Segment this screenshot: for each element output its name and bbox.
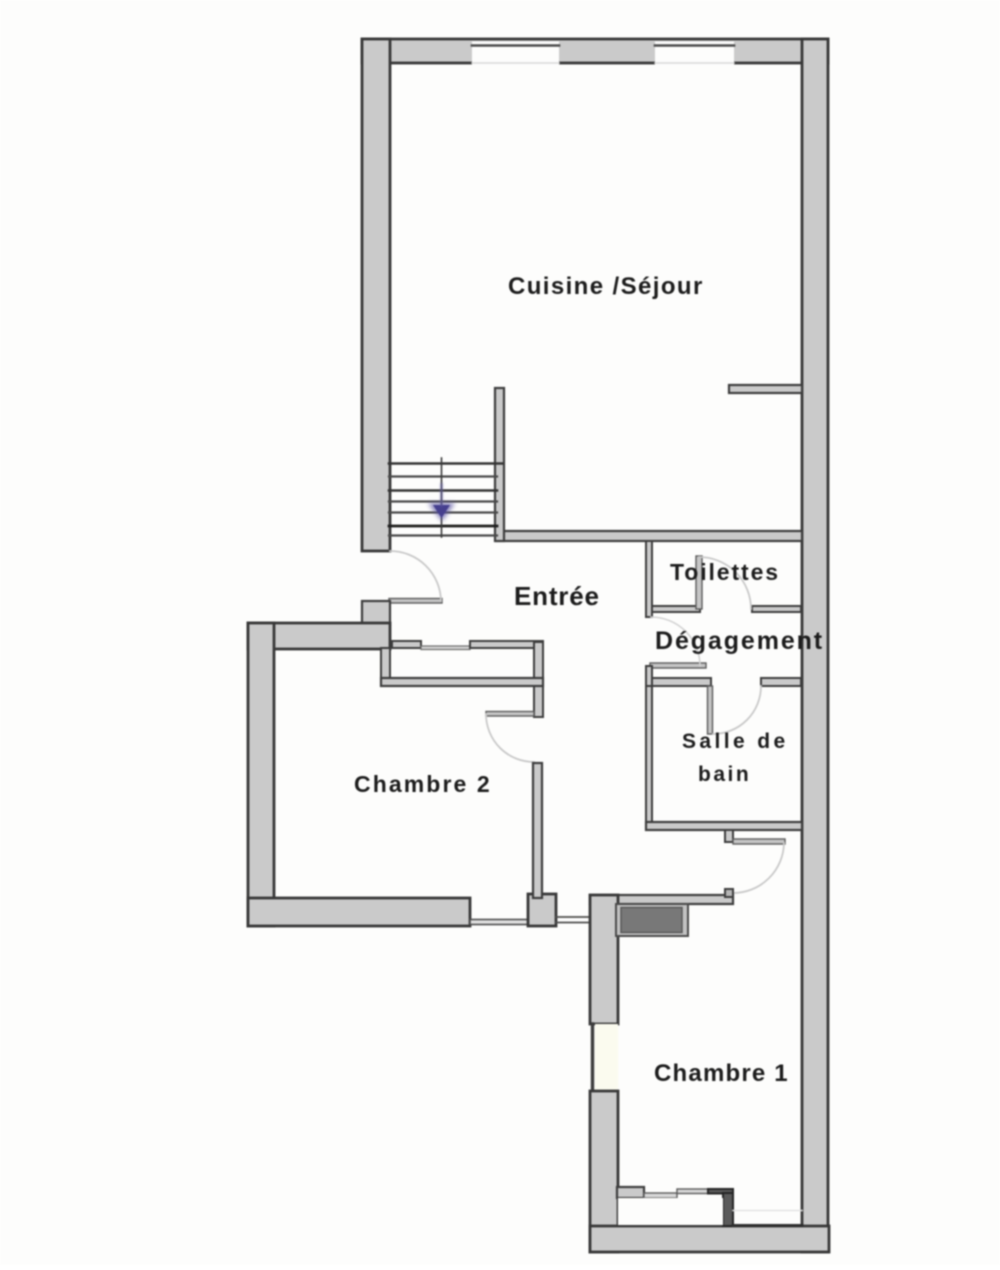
svg-text:Entrée: Entrée — [514, 581, 600, 611]
svg-text:Chambre 1: Chambre 1 — [654, 1060, 789, 1087]
svg-text:Cuisine /Séjour: Cuisine /Séjour — [508, 273, 704, 300]
svg-text:Toilettes: Toilettes — [670, 559, 780, 585]
svg-text:Dégagement: Dégagement — [655, 627, 824, 655]
svg-text:bain: bain — [698, 763, 751, 786]
svg-text:Salle de: Salle de — [682, 730, 789, 753]
svg-text:Chambre 2: Chambre 2 — [354, 771, 492, 797]
